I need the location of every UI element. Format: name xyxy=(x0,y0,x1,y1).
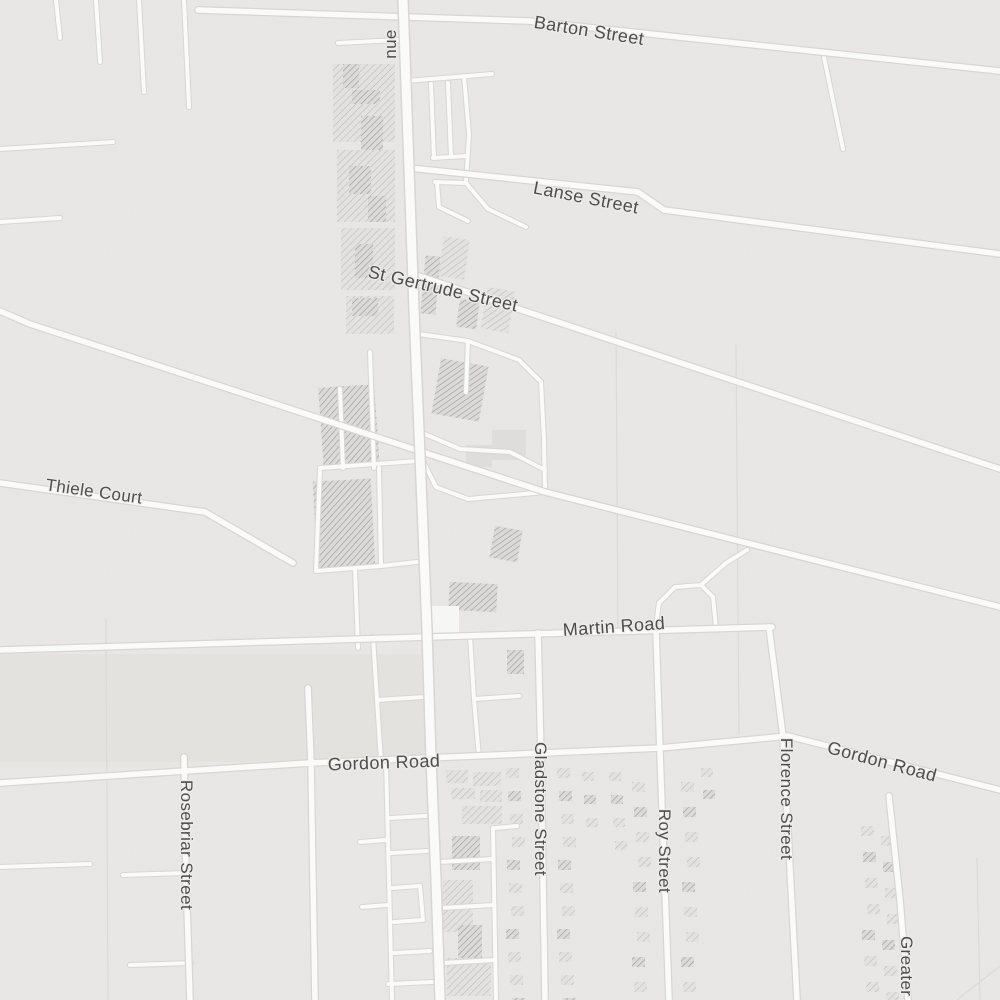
rowhouse-block xyxy=(886,992,899,1000)
rowhouse-block xyxy=(582,772,594,781)
rowhouse-block xyxy=(584,795,596,804)
building-block xyxy=(452,836,480,870)
building-block xyxy=(489,526,522,562)
rowhouse-block xyxy=(636,832,649,842)
rowhouse-block xyxy=(867,904,880,914)
rowhouse-block xyxy=(586,818,598,827)
rowhouse-block xyxy=(632,957,645,967)
rowhouse-block xyxy=(633,882,646,892)
rowhouse-block xyxy=(681,782,694,792)
rowhouse-block xyxy=(508,791,521,801)
rowhouse-block xyxy=(557,929,570,939)
rowhouse-block xyxy=(686,932,699,942)
building-block xyxy=(458,925,482,963)
building-block xyxy=(462,806,502,824)
rowhouse-block xyxy=(562,906,575,916)
rowhouse-block xyxy=(615,841,627,850)
building-block xyxy=(349,166,371,194)
rowhouse-block xyxy=(509,883,522,893)
minor-road xyxy=(435,182,466,183)
rowhouse-block xyxy=(683,982,696,992)
building-block xyxy=(456,299,480,330)
rowhouse-block xyxy=(560,883,573,893)
minor-road xyxy=(123,873,186,875)
rowhouse-block xyxy=(557,768,570,778)
rowhouse-block xyxy=(637,932,650,942)
building-block xyxy=(361,116,383,150)
rowhouse-block xyxy=(510,814,523,824)
rowhouse-block xyxy=(507,860,520,870)
building-block xyxy=(352,90,380,104)
rowhouse-block xyxy=(864,956,877,966)
rowhouse-block xyxy=(561,814,574,824)
rowhouse-block xyxy=(613,818,625,827)
rowhouse-block xyxy=(508,952,521,962)
minor-road xyxy=(388,982,433,984)
building-block xyxy=(368,196,386,222)
minor-road xyxy=(433,156,466,158)
rowhouse-block xyxy=(882,940,895,950)
building-block xyxy=(432,358,489,421)
map-background xyxy=(0,0,1000,1000)
minor-road xyxy=(391,851,427,853)
building-block xyxy=(446,770,468,783)
minor-road xyxy=(362,905,388,907)
rowhouse-block xyxy=(634,807,647,817)
rowhouse-block xyxy=(866,982,879,992)
rowhouse-block xyxy=(863,852,876,862)
building-block xyxy=(343,64,359,88)
building-block xyxy=(451,788,475,799)
minor-road xyxy=(394,951,430,953)
rowhouse-block xyxy=(511,906,524,916)
building-block xyxy=(313,479,376,570)
rowhouse-block xyxy=(682,882,695,892)
rowhouse-block xyxy=(632,782,645,792)
rowhouse-block xyxy=(559,952,572,962)
building-block xyxy=(438,236,469,279)
rowhouse-block xyxy=(635,907,648,917)
building-block xyxy=(352,298,378,316)
minor-road xyxy=(390,816,426,818)
rowhouse-block xyxy=(506,929,519,939)
rowhouse-block xyxy=(558,860,571,870)
map-canvas[interactable]: nue Barton Street Lanse Street St Gertru… xyxy=(0,0,1000,1000)
rowhouse-block xyxy=(701,768,713,777)
rowhouse-block xyxy=(681,957,694,967)
rowhouse-block xyxy=(512,837,525,847)
rowhouse-block xyxy=(563,837,576,847)
minor-road xyxy=(130,963,191,965)
building-block xyxy=(507,650,524,674)
rowhouse-block xyxy=(638,857,651,867)
rowhouse-block xyxy=(506,768,519,778)
building-block xyxy=(355,244,373,278)
rowhouse-block xyxy=(884,966,897,976)
minor-road xyxy=(360,840,386,842)
minor-road xyxy=(466,341,468,392)
building-block xyxy=(480,790,502,802)
rowhouse-block xyxy=(703,790,715,799)
rowhouse-block xyxy=(609,772,621,781)
building-block xyxy=(473,772,501,786)
rowhouse-block xyxy=(684,907,697,917)
rowhouse-block xyxy=(561,975,574,985)
rowhouse-block xyxy=(634,982,647,992)
rowhouse-block xyxy=(559,791,572,801)
minor-road xyxy=(379,468,381,566)
rowhouse-block xyxy=(611,795,623,804)
rowhouse-block xyxy=(861,826,874,836)
map-tiles-layer[interactable] xyxy=(0,0,1000,1000)
rowhouse-block xyxy=(683,807,696,817)
rowhouse-block xyxy=(685,832,698,842)
rowhouse-block xyxy=(510,975,523,985)
rowhouse-block xyxy=(865,878,878,888)
rowhouse-block xyxy=(687,857,700,867)
rowhouse-block xyxy=(862,930,875,940)
minor-road xyxy=(496,826,517,828)
